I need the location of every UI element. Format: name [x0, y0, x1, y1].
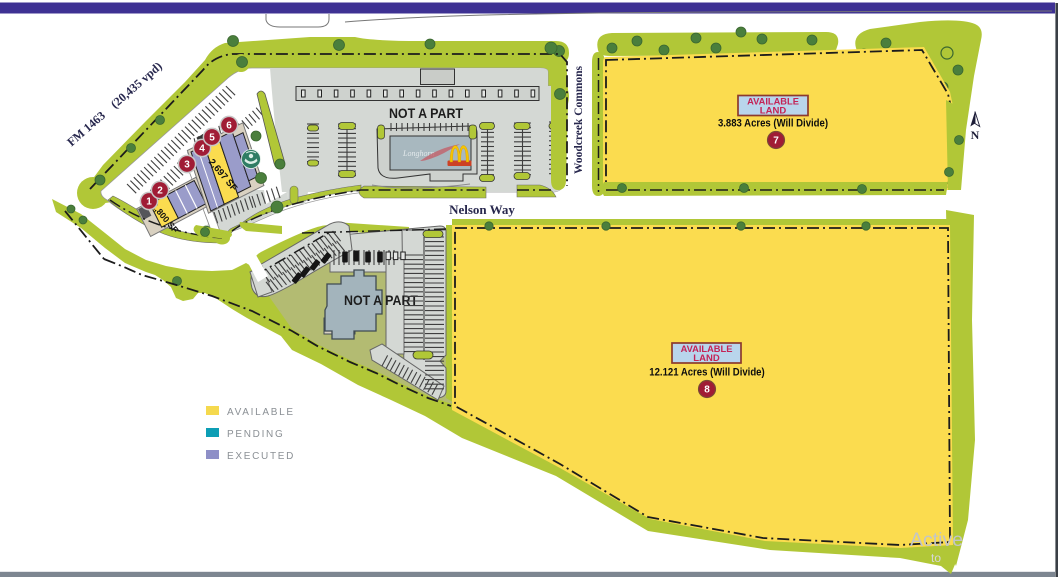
svg-text:NOT A PART: NOT A PART — [389, 106, 463, 122]
svg-text:3.883 Acres (Will Divide): 3.883 Acres (Will Divide) — [718, 118, 828, 130]
svg-text:7: 7 — [773, 136, 779, 147]
svg-text:5: 5 — [209, 133, 215, 144]
svg-text:8: 8 — [704, 385, 710, 396]
svg-text:4: 4 — [199, 144, 205, 155]
svg-text:LAND: LAND — [760, 106, 787, 117]
svg-text:PENDING: PENDING — [227, 429, 284, 440]
svg-text:1: 1 — [146, 197, 152, 208]
svg-text:12.121 Acres (Will Divide): 12.121 Acres (Will Divide) — [649, 367, 764, 379]
svg-text:to: to — [931, 551, 941, 565]
svg-text:Woodcreek Commons: Woodcreek Commons — [573, 65, 585, 174]
svg-text:6: 6 — [226, 121, 232, 132]
svg-text:Nelson Way: Nelson Way — [449, 202, 515, 217]
svg-text:3: 3 — [184, 160, 190, 171]
svg-text:AVAILABLE: AVAILABLE — [227, 407, 295, 418]
svg-text:LAND: LAND — [693, 353, 720, 364]
svg-text:N: N — [971, 128, 980, 142]
svg-text:EXECUTED: EXECUTED — [227, 451, 295, 462]
svg-text:2: 2 — [157, 186, 163, 197]
svg-text:Active: Active — [910, 529, 963, 551]
